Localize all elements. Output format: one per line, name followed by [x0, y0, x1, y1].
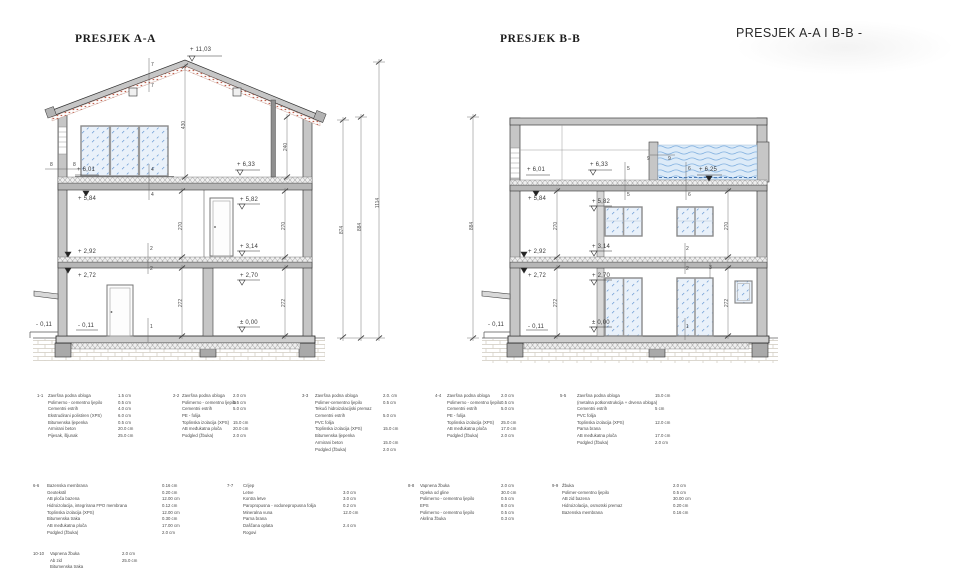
level-b-pool: + 6,25: [699, 167, 717, 173]
level-a-slab2-mid: + 3,14: [240, 244, 258, 250]
level-a-ground-inside: - 0,11: [78, 323, 94, 329]
legend-item-value: 25.0 cm: [501, 421, 516, 426]
legend-item-value: 5.0 cm: [501, 407, 514, 412]
dim-a-floor2-left: 270: [178, 214, 184, 238]
legend-item-name: Podgled (žbuka): [577, 441, 608, 446]
legend-item-value: 0.5 cm: [501, 497, 514, 502]
legend-item-name: Daščana oplata: [243, 524, 273, 529]
legend-item-name: Mineralna vuna: [243, 511, 272, 516]
legend-item-name: Toplinska izolacija (XPS): [447, 421, 494, 426]
legend-item-value: 0.20 cm: [162, 491, 177, 496]
legend-item-name: EPS: [420, 504, 429, 509]
mark-a-roof-upper: 7: [151, 62, 154, 68]
level-a-zero: ± 0,00: [240, 320, 258, 326]
legend-item-name: Toplinska izolacija (XPS): [577, 421, 624, 426]
legend-item-name: Crijep: [243, 484, 254, 489]
legend-item-name: Bitumenska ljepenka: [48, 421, 88, 426]
legend-item-name: Cementni estrih: [48, 407, 78, 412]
legend-item-value: 2.0 cm: [501, 434, 514, 439]
legend-item-value: 0.3 cm: [501, 517, 514, 522]
legend-id: 1-1: [37, 394, 43, 399]
legend-item-name: Bitumenska ljepenka: [315, 434, 355, 439]
level-b-slab2-mid: + 3,14: [592, 244, 610, 250]
legend-item-value: 0.5 cm: [118, 401, 131, 406]
level-b-floor2-mid: + 5,82: [592, 199, 610, 205]
legend-item-name: Žbuka: [562, 484, 574, 489]
legend-item-name: Geotekstil: [47, 491, 66, 496]
legend-item-name: Ekstrudirani polistiren (XPS): [48, 414, 102, 419]
legend-item-name: Podgled (žbuka): [182, 434, 213, 439]
level-b-slab2-left: + 2,92: [528, 249, 546, 255]
mark-b-floor: 1: [686, 324, 689, 330]
legend-item-name: AB međukatna ploča: [47, 524, 87, 529]
dim-a-overall-3: 1114: [375, 191, 381, 215]
legend-item-name: Cementni estrih: [315, 414, 345, 419]
legend-item-name: Polimer-cementno ljepilo: [315, 401, 362, 406]
combined-title: PRESJEK A-A I B-B -: [736, 26, 862, 40]
mark-b-pool-b: 9: [668, 156, 671, 162]
legend-item-value: 3.0 cm: [343, 497, 356, 502]
section-a-walls: [30, 114, 312, 338]
legend-id: 9-9: [552, 484, 558, 489]
legend-id: 3-3: [302, 394, 308, 399]
legend-item-name: Toplinska izolacija (XPS): [182, 421, 229, 426]
mark-a-slab2-lower: 2: [150, 266, 153, 272]
legend-item-name: Bazenska membrana: [47, 484, 88, 489]
legend-item-value: 2.0 cm: [122, 552, 135, 557]
legend-id: 7-7: [227, 484, 233, 489]
legend-item-name: Završna podna obloga: [577, 394, 620, 399]
legend-item-name: AB međukatna ploča: [182, 427, 222, 432]
level-b-floor1-left: + 2,72: [528, 273, 546, 279]
legend-item-name: Cementni estrih: [447, 407, 477, 412]
legend-item-value: 25.0 cm: [122, 559, 137, 564]
legend-item-value: 5.0 cm: [383, 414, 396, 419]
legend-id: 5-5: [560, 394, 566, 399]
legend-item-value: 0.20 cm: [673, 504, 688, 509]
legend-item-value: 15.0 cm: [383, 441, 398, 446]
legend-id: 10-10: [33, 552, 44, 557]
mark-b-slab-attic-upper2: 6: [688, 166, 691, 172]
legend-item-value: 8.0 cm: [501, 504, 514, 509]
dim-a-attic-height: 430: [181, 113, 187, 137]
legend-item-name: Vapnena žbuka: [420, 484, 450, 489]
legend-item-name: Polimerno - cementno ljepilo: [48, 401, 102, 406]
legend-item-name: AB međukatna ploča: [447, 427, 487, 432]
legend-id: 4-4: [435, 394, 441, 399]
dim-b-floor2-left: 270: [553, 214, 559, 238]
dim-a-attic-eave: 240: [283, 135, 289, 159]
level-b-ground-outside: - 0,11: [488, 322, 504, 328]
level-a-ridge: + 11,03: [190, 47, 211, 53]
legend-item-name: Bitumenska traka: [47, 517, 80, 522]
legend-item-value: 2.0 cm: [162, 531, 175, 536]
dim-a-floor1-right: 272: [281, 291, 287, 315]
legend-item-name: Ab zid: [50, 559, 62, 564]
dim-b-overall: 884: [469, 214, 475, 238]
legend-item-name: PVC folija: [315, 421, 334, 426]
legend-item-value: 2.0 cm: [655, 441, 668, 446]
architectural-drawing: [0, 0, 960, 570]
mark-b-slab-attic-lower2: 6: [688, 192, 691, 198]
legend-item-name: Hidroizolacija, integrirana FPO membrana: [47, 504, 127, 509]
mark-a-floor: 1: [150, 324, 153, 330]
legend-id: 8-8: [408, 484, 414, 489]
mark-b-window: 3: [709, 265, 712, 271]
legend-item-name: Rogovi: [243, 531, 256, 536]
legend-item-value: 0.16 cm: [673, 511, 688, 516]
legend-item-value: 15.0 cm: [233, 421, 248, 426]
section-a-slabs: [58, 177, 312, 268]
legend-item-value: 30.00 cm: [673, 497, 691, 502]
legend-item-name: Polimerno - cementno ljepilo: [420, 497, 474, 502]
level-a-ground-outside: - 0,11: [36, 322, 52, 328]
legend-item-value: 5.0 cm: [233, 407, 246, 412]
level-b-floor1-mid: + 2,70: [592, 273, 610, 279]
dim-b-floor1-right: 272: [724, 291, 730, 315]
legend-item-name: AB međukatna ploča: [577, 434, 617, 439]
legend-item-name: Bazenska membrana: [562, 511, 603, 516]
legend-item-value: 30.0 cm: [501, 491, 516, 496]
legend-item-name: Podgled (žbuka): [447, 434, 478, 439]
legend-item-value: 2.0 cm: [673, 484, 686, 489]
legend-item-name: Tekući hidroizolacijski premaz: [315, 407, 372, 412]
legend-item-name: Parna brana: [243, 517, 267, 522]
legend-item-name: PE - folija: [447, 414, 465, 419]
legend-item-value: 0.12 cm: [162, 504, 177, 509]
level-b-floor2-left: + 5,84: [528, 196, 546, 202]
legend-item-value: 17.0 cm: [655, 434, 670, 439]
mark-a-slab-attic-lower: 4: [151, 192, 154, 198]
level-a-floor1-mid: + 2,70: [240, 273, 258, 279]
mark-b-pool-a: 9: [647, 156, 650, 162]
legend-item-value: 2.0 cm: [501, 394, 514, 399]
level-b-attic-mid: + 6,33: [590, 162, 608, 168]
legend-item-value: 0.30 cm: [162, 517, 177, 522]
mark-b-slab-attic-upper: 5: [627, 166, 630, 172]
legend-item-name: Polimer-cementno ljepilo: [562, 491, 609, 496]
legend-item-value: 6.0 cm: [118, 414, 131, 419]
legend-item-value: 2.0 cm: [233, 394, 246, 399]
legend-item-name: Polimerno - cementno ljepilo: [182, 401, 236, 406]
mark-b-slab-attic-lower: 5: [627, 192, 630, 198]
legend-item-name: Cementni estrih: [182, 407, 212, 412]
legend-item-value: 0.5 cm: [501, 511, 514, 516]
legend-item-value: 0.5 cm: [383, 401, 396, 406]
legend-item-value: 17.00 cm: [162, 524, 180, 529]
legend-id: 6-6: [33, 484, 39, 489]
legend-item-value: 12.0 cm: [343, 511, 358, 516]
section-b-title: PRESJEK B-B: [500, 33, 580, 45]
dim-a-floor2-right: 270: [281, 214, 287, 238]
legend-item-value: 4.0 cm: [118, 407, 131, 412]
legend-item-name: Parna brana: [577, 427, 601, 432]
legend-item-name: Cementni estrih: [577, 407, 607, 412]
mark-a-wall-out: 8: [50, 162, 53, 168]
legend-item-name: Toplinska izolacija (XPS): [315, 427, 362, 432]
dim-b-floor1-left: 272: [553, 291, 559, 315]
legend-item-value: 17.0 cm: [501, 427, 516, 432]
mark-b-slab2-upper: 2: [686, 246, 689, 252]
mark-a-roof-lower: 7: [151, 83, 154, 89]
legend-item-value: 12.00 cm: [162, 511, 180, 516]
legend-item-name: PE - folija: [182, 414, 200, 419]
legend-item-value: 2.4 cm: [343, 524, 356, 529]
legend-item-value: 3.0 cm: [343, 491, 356, 496]
legend-item-name: Letve: [243, 491, 254, 496]
legend-item-name: Završna podna obloga: [48, 394, 91, 399]
legend-item-value: 20.0 cm: [118, 427, 133, 432]
legend-item-name: Toplinska izolacija (XPS): [47, 511, 94, 516]
level-a-attic-left: + 6,01: [77, 167, 95, 173]
legend-item-name: AB zid bazena: [562, 497, 590, 502]
legend-item-name: Završna podna obloga: [447, 394, 490, 399]
legend-item-name: Opeka od gline: [420, 491, 449, 496]
legend-item-name: Bitumenska traka: [50, 565, 83, 570]
legend-item-name: Hidroizolacija, osmotski premaz: [562, 504, 622, 509]
legend-item-value: 12.0 cm: [655, 421, 670, 426]
legend-item-name: Završna podna obloga: [182, 394, 225, 399]
legend-item-name: Završna podna obloga: [315, 394, 358, 399]
legend-item-name: Vapnena žbuka: [50, 552, 80, 557]
legend-item-value: 0.16 cm: [162, 484, 177, 489]
legend-item-name: Akrilna žbuka: [420, 517, 446, 522]
dim-a-overall-2: 884: [357, 215, 363, 239]
legend-item-name: (metalna potkonstrukcija + drvena obloga…: [577, 401, 657, 406]
drawing-sheet: PRESJEK A-A PRESJEK B-B PRESJEK A-A I B-…: [0, 0, 960, 570]
legend-item-name: Pijesak, šljunak: [48, 434, 78, 439]
mark-a-slab2-upper: 2: [150, 246, 153, 252]
legend-item-name: Polimerno - cementno ljepilo: [447, 401, 501, 406]
legend-item-value: 2.0 cm: [501, 484, 514, 489]
legend-item-name: AB ploča bazena: [47, 497, 80, 502]
legend-item-value: 15.0 cm: [655, 394, 670, 399]
legend-item-value: 12.00 cm: [162, 497, 180, 502]
legend-item-value: 2.0. cm: [383, 394, 397, 399]
dim-b-floor2-right: 270: [724, 214, 730, 238]
level-a-slab2-left: + 2,92: [78, 249, 96, 255]
legend-item-value: 2.0 cm: [233, 434, 246, 439]
legend-item-name: Paropropusna - vodonepropusna folija: [243, 504, 316, 509]
legend-item-value: 5 cm: [655, 407, 664, 412]
legend-item-value: 0.5 cm: [233, 401, 246, 406]
legend-item-value: 2.0 cm: [383, 448, 396, 453]
legend-item-value: 1.5 cm: [118, 394, 131, 399]
level-a-attic-mid: + 6,33: [237, 162, 255, 168]
legend-item-name: PVC folija: [577, 414, 596, 419]
legend-item-name: Podgled (žbuka): [315, 448, 346, 453]
level-b-zero: ± 0,00: [592, 320, 610, 326]
level-b-ground-inside: - 0,11: [528, 324, 544, 330]
section-a-title: PRESJEK A-A: [75, 33, 156, 45]
legend-item-name: Podgled (žbuka): [47, 531, 78, 536]
legend-item-value: 0.5 cm: [673, 491, 686, 496]
mark-a-wall-in: 8: [73, 162, 76, 168]
legend-item-value: 25.0 cm: [118, 434, 133, 439]
mark-a-slab-attic-upper: 4: [151, 167, 154, 173]
legend-item-name: Polimerno - cementno ljepilo: [420, 511, 474, 516]
mark-b-slab2-lower: 2: [686, 266, 689, 272]
legend-item-value: 15.0 cm: [383, 427, 398, 432]
legend-id: 2-2: [173, 394, 179, 399]
legend-item-value: 0.2 cm: [343, 504, 356, 509]
legend-item-name: Kontra letve: [243, 497, 266, 502]
level-a-floor2-mid: + 5,82: [240, 197, 258, 203]
legend-item-name: Armirani beton: [315, 441, 343, 446]
level-a-floor1-left: + 2,72: [78, 273, 96, 279]
level-a-floor2-left: + 5,84: [78, 196, 96, 202]
legend-item-value: 0.5 cm: [118, 421, 131, 426]
level-b-attic-left: + 6,01: [527, 167, 545, 173]
legend-item-value: 0.5 cm: [501, 401, 514, 406]
legend-item-value: 20.0 cm: [233, 427, 248, 432]
legend-item-name: Armirani beton: [48, 427, 76, 432]
dim-a-overall-1: 874: [339, 218, 345, 242]
dim-a-floor1-left: 272: [178, 291, 184, 315]
